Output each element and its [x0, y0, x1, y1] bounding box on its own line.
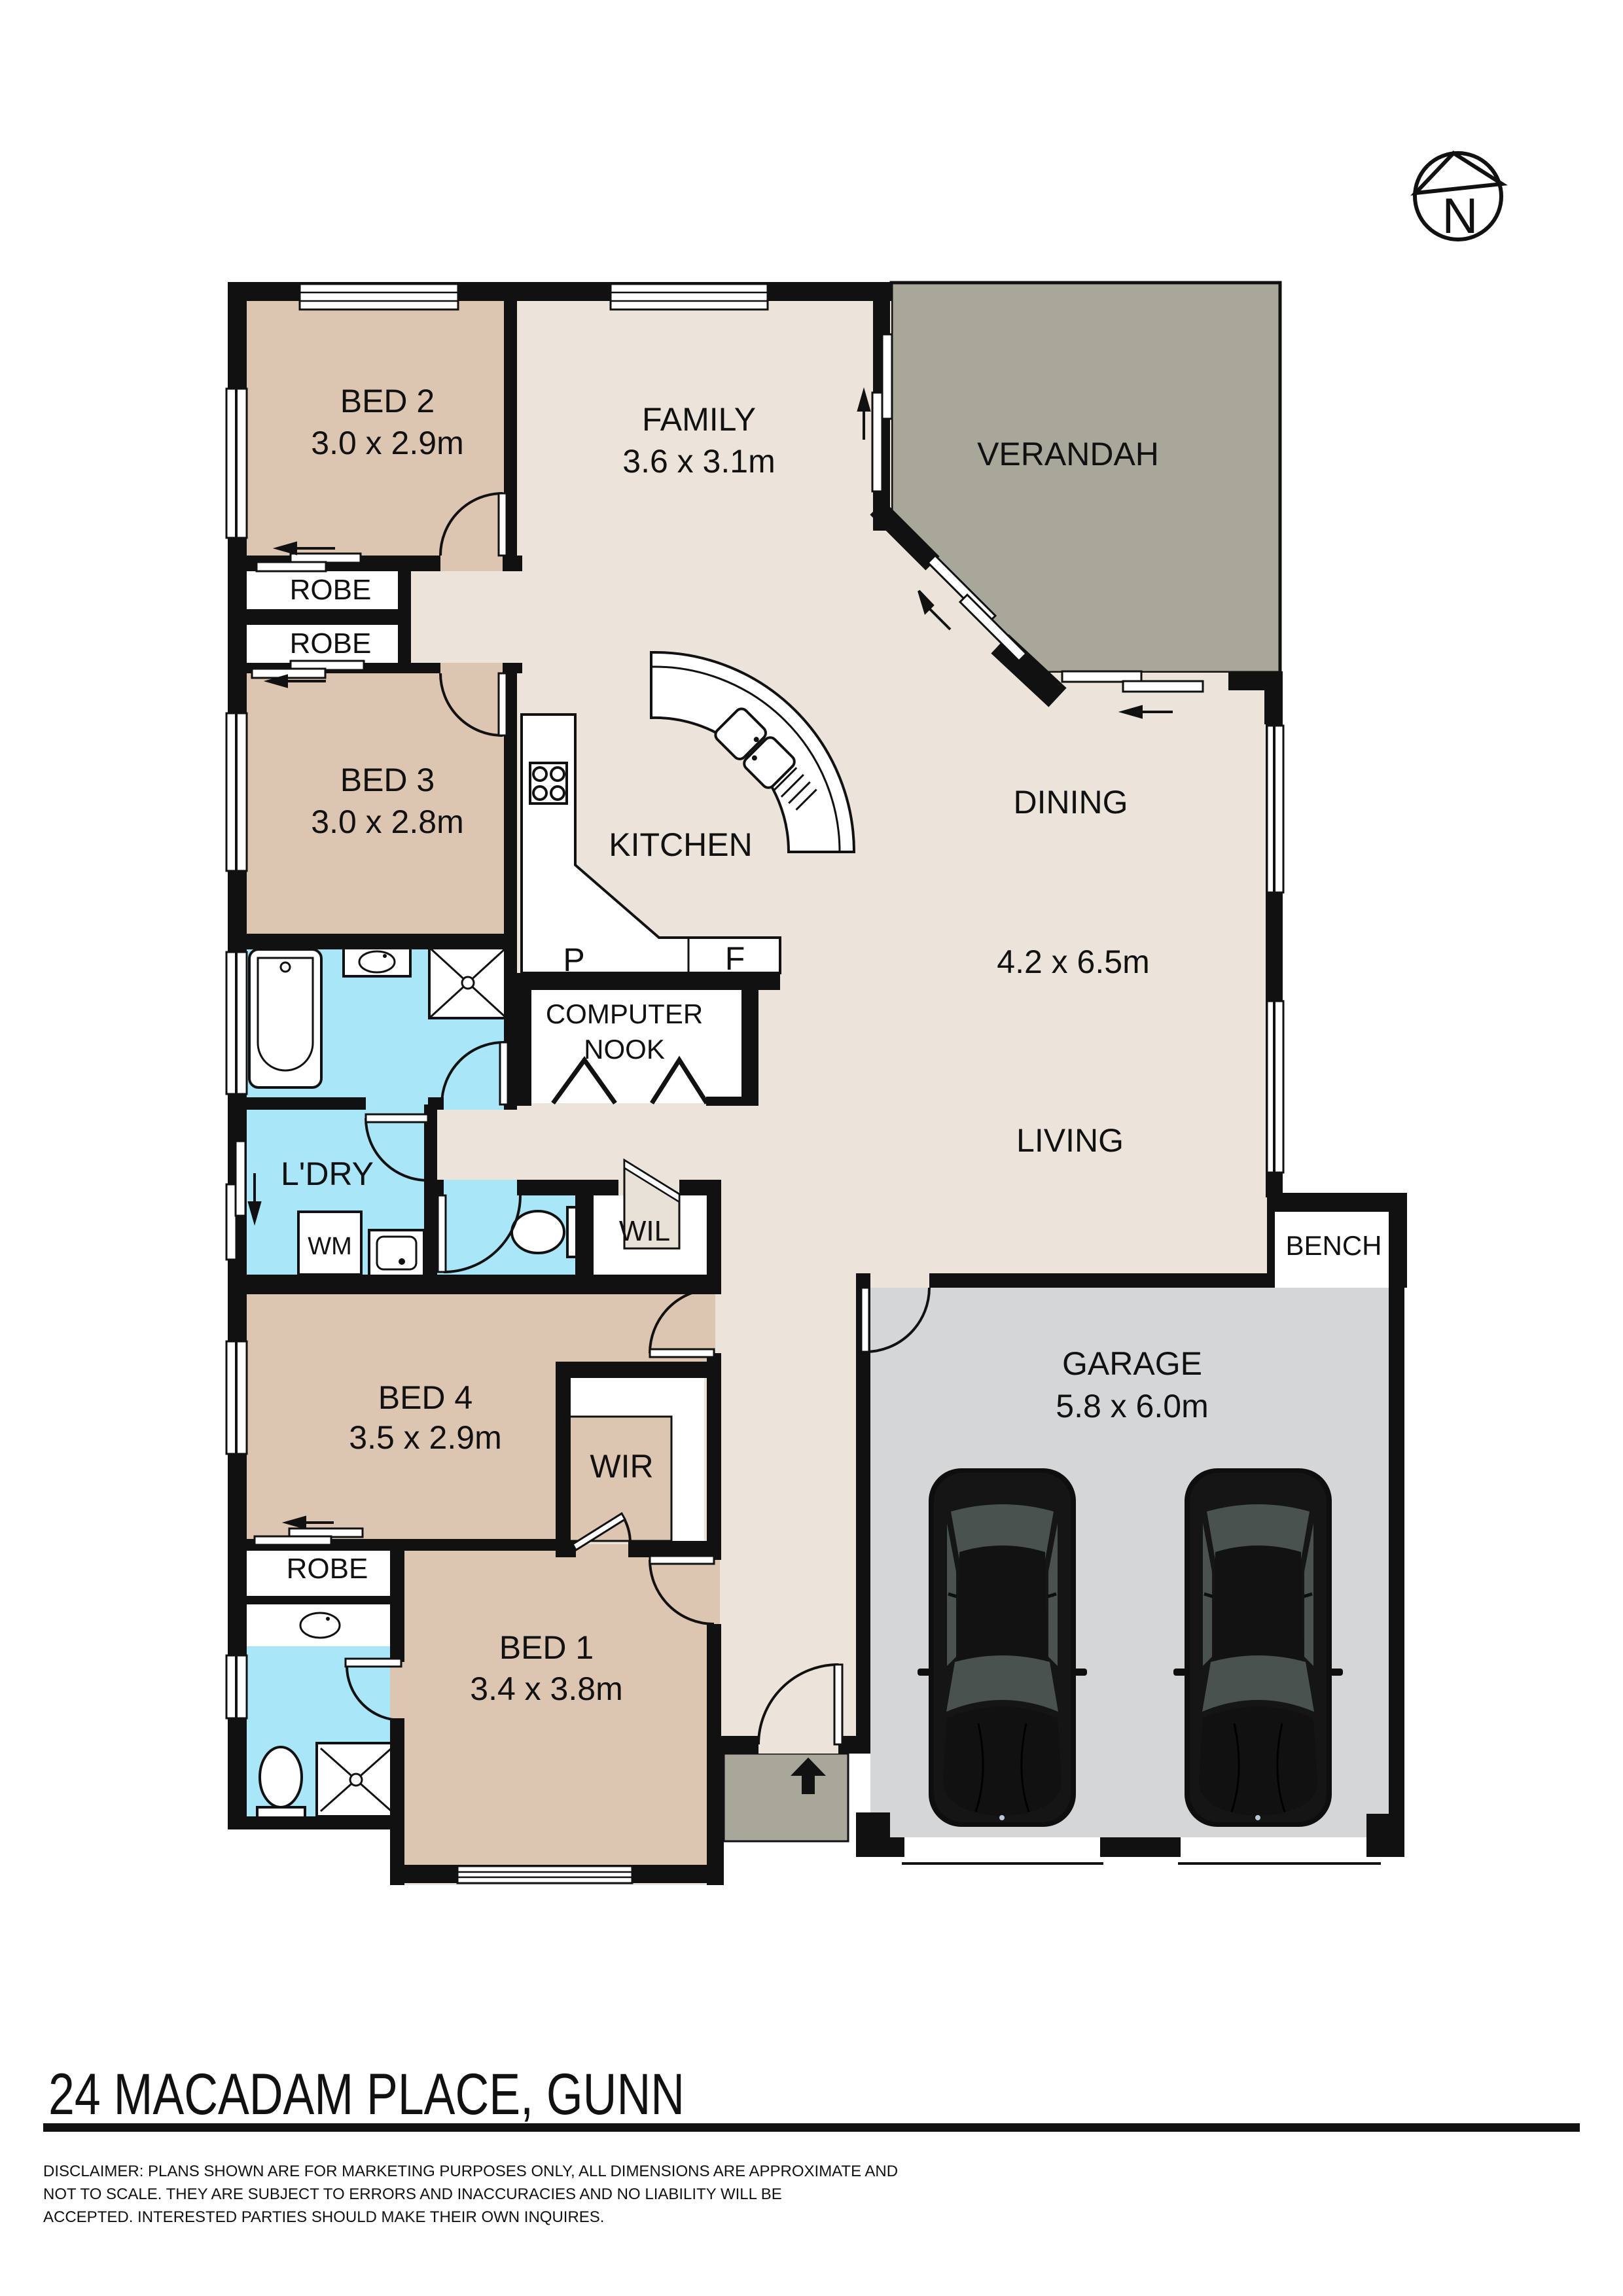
svg-text:DISCLAIMER: PLANS SHOWN ARE FO: DISCLAIMER: PLANS SHOWN ARE FOR MARKETIN…: [43, 2163, 898, 2180]
svg-text:24 MACADAM PLACE, GUNN: 24 MACADAM PLACE, GUNN: [48, 2061, 685, 2127]
svg-text:DINING: DINING: [1014, 784, 1128, 821]
svg-text:COMPUTER: COMPUTER: [546, 998, 703, 1029]
svg-text:VERANDAH: VERANDAH: [977, 436, 1159, 472]
svg-text:3.0 x 2.9m: 3.0 x 2.9m: [311, 425, 463, 461]
svg-text:WIL: WIL: [619, 1215, 670, 1247]
svg-text:WM: WM: [308, 1233, 352, 1260]
svg-text:3.0 x 2.8m: 3.0 x 2.8m: [311, 804, 463, 840]
svg-text:5.8 x 6.0m: 5.8 x 6.0m: [1056, 1388, 1208, 1424]
svg-text:NOT TO SCALE. THEY ARE SUBJE: NOT TO SCALE. THEY ARE SUBJECT TO ERRORS…: [43, 2185, 782, 2203]
svg-text:ROBE: ROBE: [290, 627, 372, 660]
svg-text:F: F: [725, 940, 745, 977]
svg-text:WIR: WIR: [590, 1448, 653, 1485]
svg-text:ACCEPTED. INTERESTED PARTIES S: ACCEPTED. INTERESTED PARTIES SHOULD MAKE…: [43, 2208, 604, 2226]
svg-text:P: P: [563, 942, 584, 978]
svg-text:FAMILY: FAMILY: [642, 401, 756, 438]
svg-text:KITCHEN: KITCHEN: [609, 826, 752, 863]
svg-text:GARAGE: GARAGE: [1062, 1345, 1202, 1382]
svg-text:BED 3: BED 3: [340, 762, 435, 798]
svg-text:BED 4: BED 4: [378, 1379, 473, 1416]
svg-text:BENCH: BENCH: [1285, 1230, 1382, 1261]
svg-text:NOOK: NOOK: [584, 1034, 665, 1065]
svg-text:BED 2: BED 2: [340, 383, 435, 419]
svg-text:LIVING: LIVING: [1016, 1122, 1124, 1159]
svg-text:4.2 x 6.5m: 4.2 x 6.5m: [997, 944, 1149, 980]
svg-text:BED 1: BED 1: [499, 1629, 594, 1666]
svg-text:3.5 x 2.9m: 3.5 x 2.9m: [349, 1419, 501, 1456]
svg-text:ROBE: ROBE: [290, 574, 372, 606]
svg-text:3.6 x 3.1m: 3.6 x 3.1m: [622, 443, 775, 480]
svg-text:L'DRY: L'DRY: [281, 1156, 374, 1192]
svg-text:ROBE: ROBE: [287, 1553, 368, 1585]
svg-text:N: N: [1442, 188, 1478, 244]
svg-text:3.4 x 3.8m: 3.4 x 3.8m: [470, 1670, 622, 1707]
